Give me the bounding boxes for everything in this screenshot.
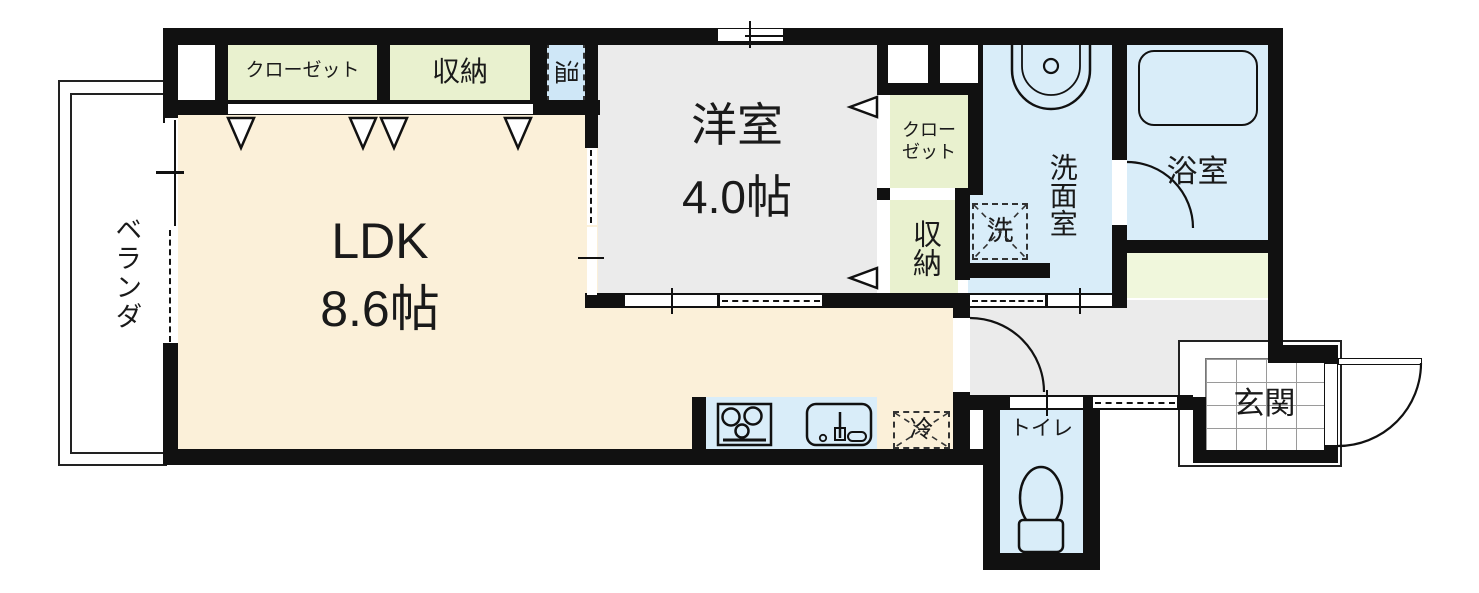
ldk-western-slide-leaf	[587, 227, 597, 295]
closet-side-door	[877, 95, 890, 188]
tick-mark	[156, 171, 184, 174]
storage-side-door	[877, 200, 890, 293]
wall-left-lower	[163, 343, 178, 465]
ldk-window	[165, 118, 178, 343]
toilet-label: トイレ	[998, 416, 1085, 442]
bathroom-door	[1112, 160, 1127, 225]
slide-dashed	[722, 300, 820, 302]
wall	[1112, 240, 1283, 253]
kitchen-counter	[692, 397, 877, 449]
western-room-name: 洋室	[637, 100, 837, 152]
kitchen-counter-end	[692, 397, 706, 449]
washer-label: 洗	[972, 203, 1028, 260]
western-room-floor	[598, 43, 879, 295]
washroom-label: 洗面室	[1040, 130, 1084, 260]
storage-top-label: 収納	[390, 43, 530, 100]
window-sash-dashed	[169, 230, 171, 342]
service-strip-floor	[1127, 253, 1268, 298]
ldk-name: LDK	[280, 212, 480, 270]
storage-side-label: 収納	[890, 205, 958, 290]
western-room-area: 4.0帖	[637, 172, 837, 224]
wall	[377, 43, 390, 100]
tick-mark	[749, 21, 751, 48]
tick-mark	[1079, 288, 1081, 314]
refrigerator-label: 冷	[893, 411, 950, 449]
ldk-area: 8.6帖	[280, 280, 480, 338]
closet-top-label: クローゼット	[228, 43, 377, 100]
entrance-door-arc	[1338, 363, 1421, 446]
wall	[1272, 345, 1338, 363]
wall	[983, 553, 1100, 570]
wall	[1112, 28, 1127, 160]
wall-right	[1268, 28, 1283, 363]
window-dashed	[1095, 402, 1175, 404]
veranda-label: ベランダ	[103, 192, 149, 354]
tick-mark	[1046, 390, 1048, 416]
bathtub	[1138, 50, 1258, 126]
wall	[1324, 446, 1338, 463]
wall	[215, 43, 228, 100]
wall	[1083, 395, 1100, 570]
pipe-space-1	[888, 43, 928, 83]
slide-dashed	[590, 150, 592, 223]
pipe-space-2	[940, 43, 978, 83]
entrance-door-slab	[1324, 363, 1338, 446]
wall	[1112, 225, 1127, 308]
ldk-hallway-door	[953, 318, 970, 392]
wall	[585, 100, 598, 148]
entrance-label: 玄関	[1205, 386, 1324, 422]
wall	[877, 188, 890, 200]
wall-bottom	[163, 449, 985, 465]
wall	[968, 95, 983, 195]
slide-dashed	[972, 300, 1043, 302]
wall	[1193, 450, 1338, 463]
closet-door-track	[228, 103, 533, 115]
tick-mark	[671, 288, 673, 314]
floor-plan: ベランダ	[0, 0, 1479, 593]
entrance-door-leaf	[1338, 358, 1422, 365]
tick-mark	[578, 257, 604, 259]
bathroom-label: 浴室	[1127, 153, 1268, 191]
wall	[968, 263, 1050, 278]
pillar-niche	[178, 43, 215, 100]
water-heater-label: 温	[547, 42, 585, 102]
ldk-western-slide-panel	[587, 148, 597, 225]
closet-side-label: クローゼット	[890, 95, 968, 188]
wall	[953, 308, 970, 318]
